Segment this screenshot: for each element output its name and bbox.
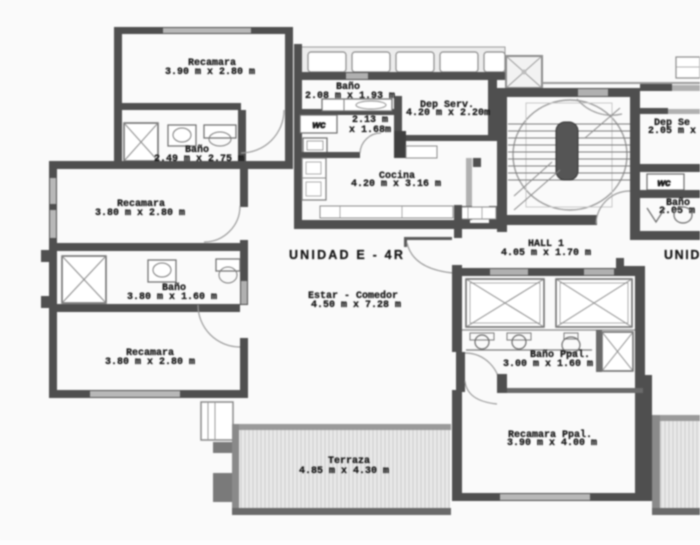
svg-text:3.80 m x 2.80 m: 3.80 m x 2.80 m: [95, 208, 185, 219]
svg-text:3.00 m x 1.60 m: 3.00 m x 1.60 m: [503, 359, 593, 370]
svg-text:UNIDAD E - 4R: UNIDAD E - 4R: [289, 248, 405, 262]
svg-text:wc: wc: [657, 178, 671, 189]
svg-text:x 1.68m: x 1.68m: [349, 125, 391, 136]
svg-text:4.50 m x 7.28 m: 4.50 m x 7.28 m: [311, 300, 401, 311]
svg-text:4.20 m x 2.20m: 4.20 m x 2.20m: [406, 108, 490, 119]
svg-text:2.08 m x 1.93 m: 2.08 m x 1.93 m: [305, 91, 395, 102]
svg-text:wc: wc: [312, 120, 326, 131]
svg-text:3.90 m x 2.80 m: 3.90 m x 2.80 m: [165, 67, 255, 78]
svg-text:UNIDA: UNIDA: [664, 248, 700, 262]
svg-text:4.20 m x 3.16 m: 4.20 m x 3.16 m: [351, 179, 441, 190]
svg-text:3.80 m x 2.80 m: 3.80 m x 2.80 m: [105, 357, 195, 368]
svg-text:3.90 m x 4.00 m: 3.90 m x 4.00 m: [507, 438, 597, 449]
svg-text:2.05 m x 1: 2.05 m x 1: [648, 126, 700, 137]
svg-text:4.05 m x 1.70 m: 4.05 m x 1.70 m: [501, 248, 591, 259]
svg-text:3.80 m x 1.60 m: 3.80 m x 1.60 m: [127, 292, 217, 303]
svg-text:4.85 m x 4.30 m: 4.85 m x 4.30 m: [299, 466, 389, 477]
